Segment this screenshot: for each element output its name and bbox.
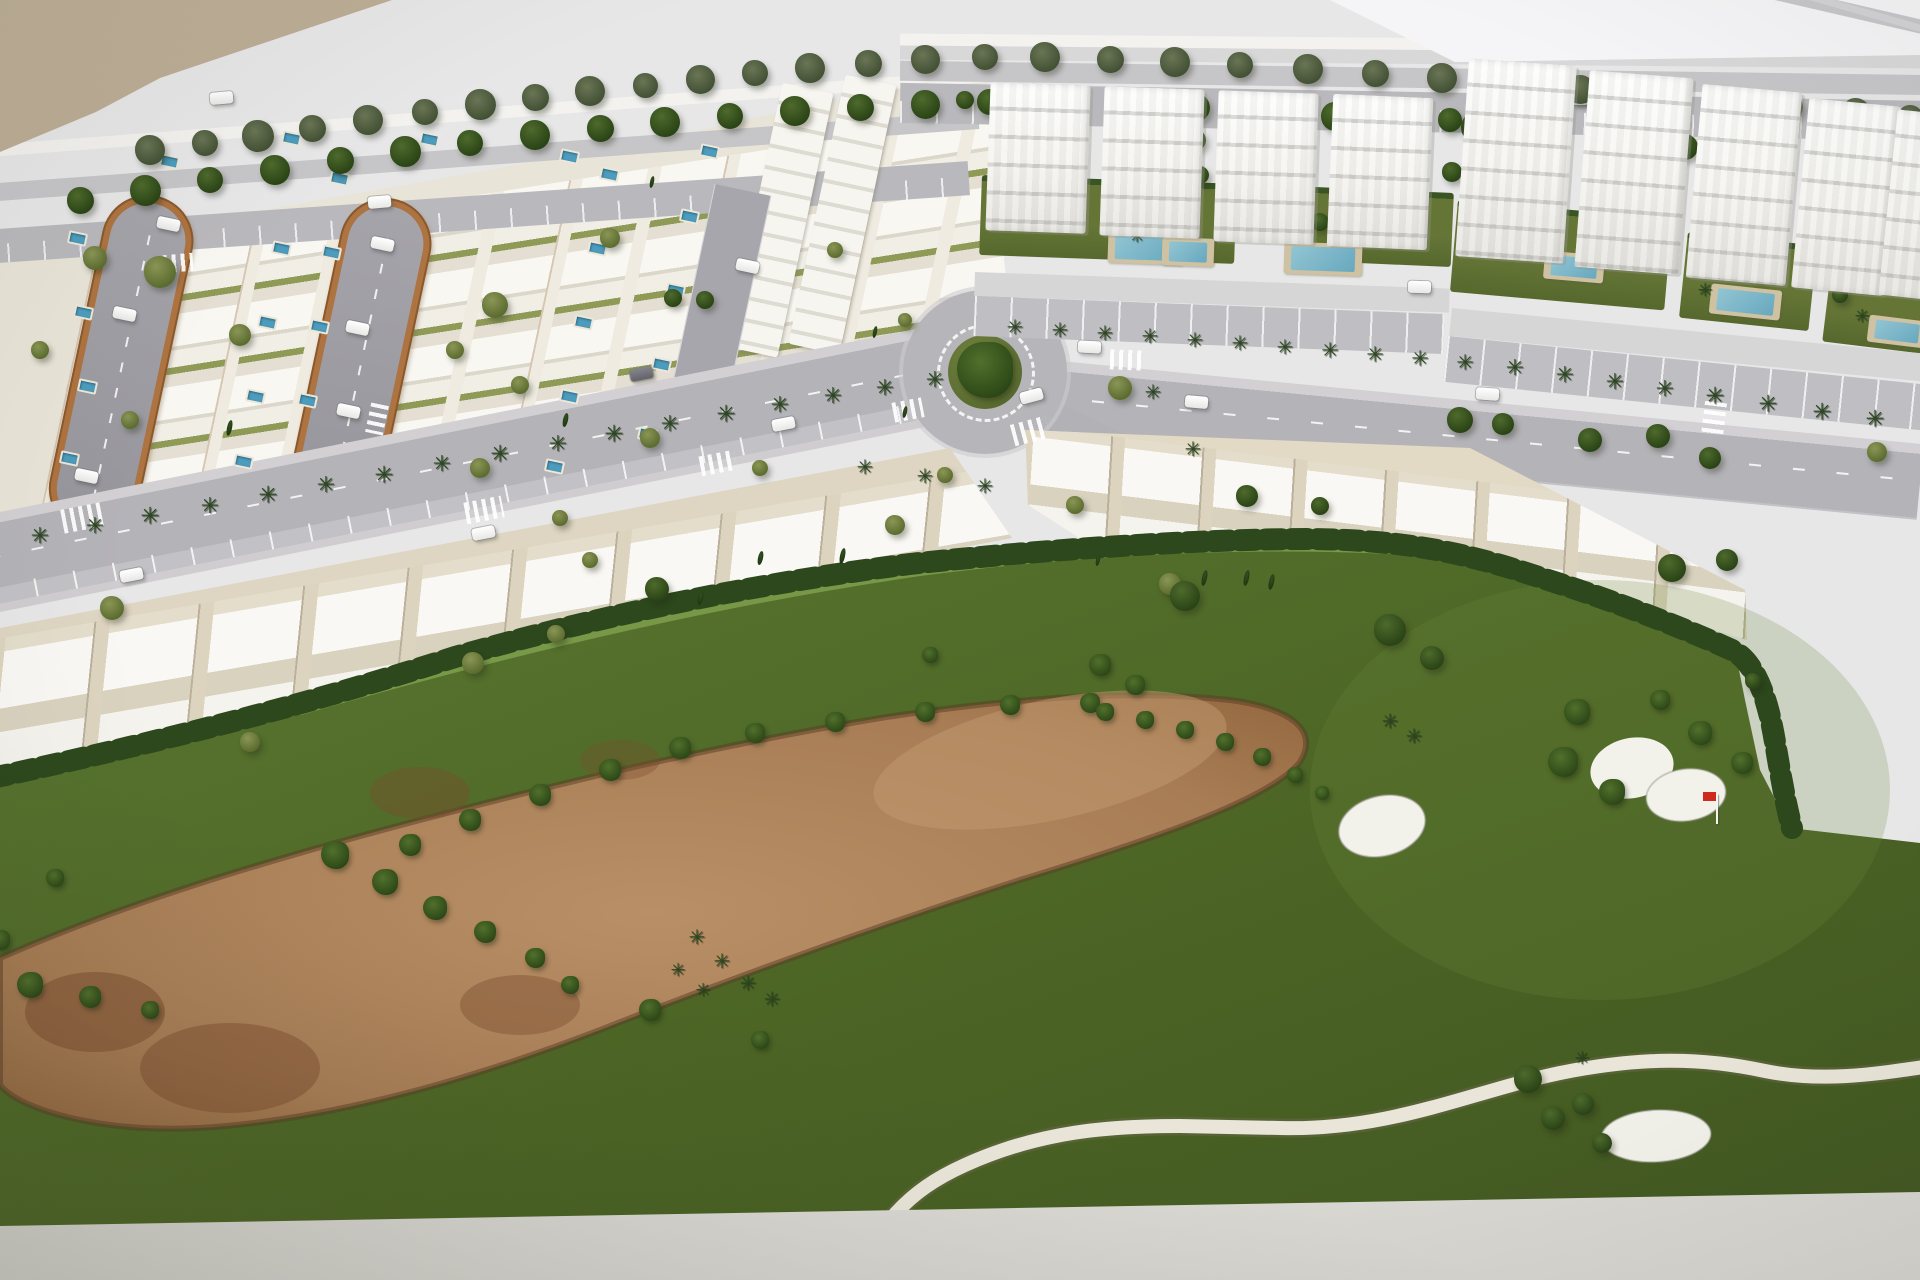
model-tree	[645, 577, 669, 601]
villa-pool	[544, 458, 565, 475]
palm-tree: ✳	[1097, 323, 1114, 343]
model-tree	[937, 467, 953, 483]
model-tree	[972, 44, 998, 70]
model-tree	[511, 376, 529, 394]
model-tree	[885, 515, 905, 535]
palm-tree: ✳	[1366, 344, 1384, 365]
architectural-model-photo: ✳✳✳✳✳✳✳✳✳✳✳✳✳✳✳✳✳✳✳✳✳✳✳✳✳✳✳✳✳✳✳✳✳✳✳✳✳✳✳✳…	[0, 0, 1920, 1280]
villa-pool	[651, 356, 672, 373]
model-bush	[1089, 654, 1111, 676]
model-car	[1408, 281, 1431, 294]
palm-tree: ✳	[1456, 352, 1474, 373]
villa-pool	[59, 450, 80, 467]
palm-tree: ✳	[1812, 401, 1831, 424]
model-tree	[522, 84, 549, 111]
cypress-tree	[1095, 554, 1101, 567]
model-tree	[135, 135, 165, 165]
model-tree	[1541, 1106, 1565, 1130]
model-bush	[1564, 699, 1590, 725]
apartment-block	[1099, 86, 1204, 238]
palm-tree: ✳	[857, 457, 874, 477]
model-tree	[1097, 46, 1124, 73]
model-tree	[664, 289, 682, 307]
villa-pool	[559, 388, 580, 405]
golf-flag	[1703, 792, 1716, 801]
apartment-block	[1686, 84, 1803, 286]
model-bush	[1731, 752, 1753, 774]
model-bush	[1125, 675, 1145, 695]
model-bush	[529, 784, 551, 806]
palm-tree: ✳	[1145, 382, 1162, 402]
model-tree	[1236, 485, 1258, 507]
model-tree	[462, 652, 484, 674]
model-tree	[1716, 549, 1738, 571]
model-bush	[751, 1031, 769, 1049]
model-tree	[911, 90, 940, 119]
palm-tree: ✳	[1406, 726, 1423, 746]
model-bush	[1096, 703, 1114, 721]
palm-tree: ✳	[31, 526, 49, 548]
model-tree	[353, 105, 383, 135]
palm-tree: ✳	[670, 962, 685, 980]
palm-tree: ✳	[374, 464, 393, 487]
cypress-tree	[839, 548, 848, 565]
palm-tree: ✳	[740, 973, 757, 993]
model-bush	[0, 930, 10, 950]
apartment-block	[1327, 94, 1434, 250]
model-tree	[827, 242, 843, 258]
cypress-tree	[1243, 570, 1252, 587]
model-tree	[446, 341, 464, 359]
cypress-tree	[561, 413, 568, 428]
model-bush	[1315, 786, 1329, 800]
model-tree	[412, 99, 438, 125]
villa-pool	[233, 453, 254, 470]
villa-pool	[559, 148, 580, 165]
model-tree	[299, 115, 326, 142]
model-tree	[1170, 581, 1200, 611]
villa-pool	[309, 318, 330, 335]
model-tree	[1646, 424, 1670, 448]
model-bush	[1253, 748, 1271, 766]
model-tree	[1442, 162, 1462, 182]
palm-tree: ✳	[716, 403, 735, 426]
villa-pool	[297, 392, 318, 409]
scenery-objects: ✳✳✳✳✳✳✳✳✳✳✳✳✳✳✳✳✳✳✳✳✳✳✳✳✳✳✳✳✳✳✳✳✳✳✳✳✳✳✳✳…	[0, 0, 1920, 1280]
palm-tree: ✳	[1052, 320, 1069, 340]
model-tree	[1492, 413, 1514, 435]
apartment-block	[1574, 70, 1693, 275]
villa-pool	[679, 208, 700, 225]
model-tree	[1293, 54, 1323, 84]
palm-tree: ✳	[433, 454, 451, 476]
model-car	[156, 216, 181, 233]
model-bush	[423, 896, 447, 920]
apartment-pool	[1867, 315, 1920, 349]
model-tree	[1438, 108, 1462, 132]
apartment-pool	[1709, 283, 1783, 320]
model-tree	[1066, 496, 1084, 514]
model-tree	[197, 167, 223, 193]
villa-pool	[245, 388, 266, 405]
apartment-block	[1213, 90, 1318, 244]
model-bush	[1688, 721, 1712, 745]
palm-tree: ✳	[917, 466, 934, 486]
model-tree	[650, 107, 680, 137]
model-tree	[260, 155, 290, 185]
model-tree	[1374, 614, 1406, 646]
palm-tree: ✳	[1865, 408, 1884, 431]
model-tree	[470, 458, 490, 478]
apartment-pool	[1162, 237, 1215, 267]
palm-tree: ✳	[1758, 393, 1777, 416]
villa-pool	[77, 378, 98, 395]
model-bush	[915, 702, 935, 722]
model-tree	[1592, 1133, 1612, 1153]
model-bush	[1216, 733, 1234, 751]
villa-pool	[67, 230, 88, 247]
model-tree	[100, 596, 124, 620]
model-tree	[520, 120, 550, 150]
cypress-tree	[649, 176, 655, 189]
model-tree	[780, 96, 810, 126]
model-tree	[547, 625, 565, 643]
model-tree	[1867, 442, 1887, 462]
model-car	[1476, 387, 1500, 401]
model-car	[210, 91, 234, 105]
model-car	[1019, 387, 1044, 405]
model-car	[336, 403, 361, 420]
model-tree	[1514, 1065, 1542, 1093]
model-tree	[575, 76, 605, 106]
model-bush	[474, 921, 496, 943]
model-tree	[1572, 1093, 1594, 1115]
model-bush	[399, 834, 421, 856]
model-tree	[192, 130, 218, 156]
model-bush	[17, 972, 43, 998]
model-car	[119, 567, 144, 583]
model-tree	[240, 732, 260, 752]
palm-tree: ✳	[771, 395, 789, 417]
palm-tree: ✳	[1705, 385, 1724, 408]
palm-tree: ✳	[1656, 379, 1674, 401]
palm-tree: ✳	[1506, 358, 1524, 380]
golf-flag-pole	[1716, 794, 1718, 824]
palm-tree: ✳	[1277, 337, 1294, 357]
palm-tree: ✳	[1606, 372, 1624, 394]
cypress-tree	[1268, 574, 1277, 591]
model-bush	[825, 712, 845, 732]
palm-tree: ✳	[1007, 317, 1024, 337]
model-bush	[1548, 747, 1578, 777]
palm-tree: ✳	[1574, 1050, 1589, 1068]
villa-pool	[573, 314, 594, 331]
model-bush	[141, 1001, 159, 1019]
model-tree	[686, 65, 715, 94]
palm-tree: ✳	[1321, 340, 1339, 361]
palm-tree: ✳	[1142, 326, 1159, 346]
palm-tree: ✳	[824, 386, 842, 408]
model-bush	[372, 869, 398, 895]
cypress-tree	[872, 326, 878, 339]
model-tree	[390, 136, 421, 167]
model-tree	[1745, 673, 1761, 689]
villa-pool	[599, 166, 620, 183]
villa-pool	[271, 240, 292, 257]
model-bush	[1000, 695, 1020, 715]
model-tree	[121, 411, 139, 429]
model-car	[629, 366, 654, 382]
model-tree	[552, 510, 568, 526]
model-bush	[639, 999, 661, 1021]
model-bush	[1287, 767, 1303, 783]
palm-tree: ✳	[549, 434, 567, 456]
model-tree	[633, 73, 658, 98]
palm-tree: ✳	[490, 443, 509, 466]
crosswalk	[463, 496, 504, 525]
palm-tree: ✳	[764, 989, 781, 1009]
model-bush	[669, 737, 691, 759]
palm-tree: ✳	[714, 951, 731, 971]
palm-tree: ✳	[1185, 439, 1202, 459]
palm-tree: ✳	[86, 516, 104, 538]
model-tree	[1427, 63, 1457, 93]
model-car	[735, 258, 760, 275]
model-tree	[1030, 42, 1060, 72]
model-tree	[130, 175, 161, 206]
palm-tree: ✳	[1187, 330, 1204, 350]
palm-tree: ✳	[1411, 348, 1429, 369]
model-tree	[898, 313, 912, 327]
villa-pool	[257, 314, 278, 331]
cypress-tree	[756, 551, 763, 566]
model-tree	[752, 460, 768, 476]
model-tree	[83, 246, 107, 270]
palm-tree: ✳	[695, 982, 710, 1000]
apartment-block	[1455, 58, 1577, 263]
cypress-tree	[226, 420, 235, 437]
model-tree	[1160, 47, 1190, 77]
model-bush	[1136, 711, 1154, 729]
model-tree	[1108, 376, 1132, 400]
model-tree	[465, 89, 496, 120]
model-car	[112, 306, 137, 323]
model-tree	[1578, 428, 1602, 452]
model-car	[368, 195, 392, 209]
crosswalk	[365, 402, 389, 435]
palm-tree: ✳	[604, 423, 623, 446]
model-tree	[1420, 646, 1444, 670]
model-bush	[745, 723, 765, 743]
crosswalk	[1010, 416, 1050, 447]
palm-tree: ✳	[201, 496, 219, 518]
palm-tree: ✳	[1854, 308, 1869, 326]
palm-tree: ✳	[661, 414, 679, 436]
villa-pool	[699, 143, 720, 160]
model-tree	[795, 53, 825, 83]
crosswalk	[891, 397, 924, 422]
model-bush	[1176, 721, 1194, 739]
model-car	[471, 525, 496, 541]
model-tree	[327, 147, 354, 174]
model-tree	[911, 45, 940, 74]
apartment-pool	[1283, 242, 1362, 277]
crosswalk	[1110, 349, 1145, 370]
model-car	[1185, 395, 1209, 409]
model-tree	[242, 120, 274, 152]
model-tree	[1311, 497, 1329, 515]
palm-tree: ✳	[926, 370, 944, 392]
model-bush	[459, 809, 481, 831]
model-tree	[717, 103, 743, 129]
model-tree	[229, 324, 251, 346]
model-car	[345, 320, 370, 337]
villa-pool	[419, 131, 440, 148]
model-bush	[561, 976, 579, 994]
model-tree	[587, 115, 614, 142]
model-bush	[321, 841, 349, 869]
model-tree	[847, 94, 874, 121]
model-bush	[1650, 690, 1670, 710]
palm-tree: ✳	[317, 475, 335, 497]
palm-tree: ✳	[977, 476, 994, 496]
model-car	[74, 468, 99, 485]
model-tree	[1362, 60, 1389, 87]
model-tree	[956, 91, 974, 109]
model-bush	[525, 948, 545, 968]
model-tree	[144, 256, 176, 288]
palm-tree: ✳	[1382, 711, 1399, 731]
model-bush	[599, 759, 621, 781]
model-tree	[67, 187, 94, 214]
model-bush	[46, 869, 64, 887]
apartment-block	[985, 82, 1090, 233]
villa-pool	[73, 304, 94, 321]
model-tree	[1447, 407, 1473, 433]
model-tree	[696, 291, 714, 309]
palm-tree: ✳	[1232, 333, 1249, 353]
model-bush	[922, 647, 938, 663]
model-tree	[640, 428, 660, 448]
palm-tree: ✳	[1556, 365, 1574, 387]
villa-pool	[321, 244, 342, 261]
model-tree	[582, 552, 598, 568]
model-tree	[742, 60, 768, 86]
cypress-tree	[1201, 570, 1210, 587]
crosswalk	[698, 450, 737, 477]
palm-tree: ✳	[258, 484, 277, 507]
model-tree	[600, 228, 620, 248]
model-tree	[1227, 52, 1253, 78]
model-tree	[31, 341, 49, 359]
model-tree	[457, 130, 483, 156]
model-bush	[1599, 779, 1625, 805]
model-car	[370, 236, 395, 253]
palm-tree: ✳	[689, 927, 706, 947]
model-car	[771, 416, 796, 432]
model-tree	[855, 50, 882, 77]
palm-tree: ✳	[876, 378, 894, 400]
cypress-tree	[696, 591, 703, 606]
model-bush	[79, 986, 101, 1008]
model-tree	[1699, 447, 1721, 469]
palm-tree: ✳	[1697, 282, 1712, 300]
palm-tree: ✳	[140, 505, 159, 528]
model-tree	[1658, 554, 1686, 582]
model-tree	[482, 292, 508, 318]
